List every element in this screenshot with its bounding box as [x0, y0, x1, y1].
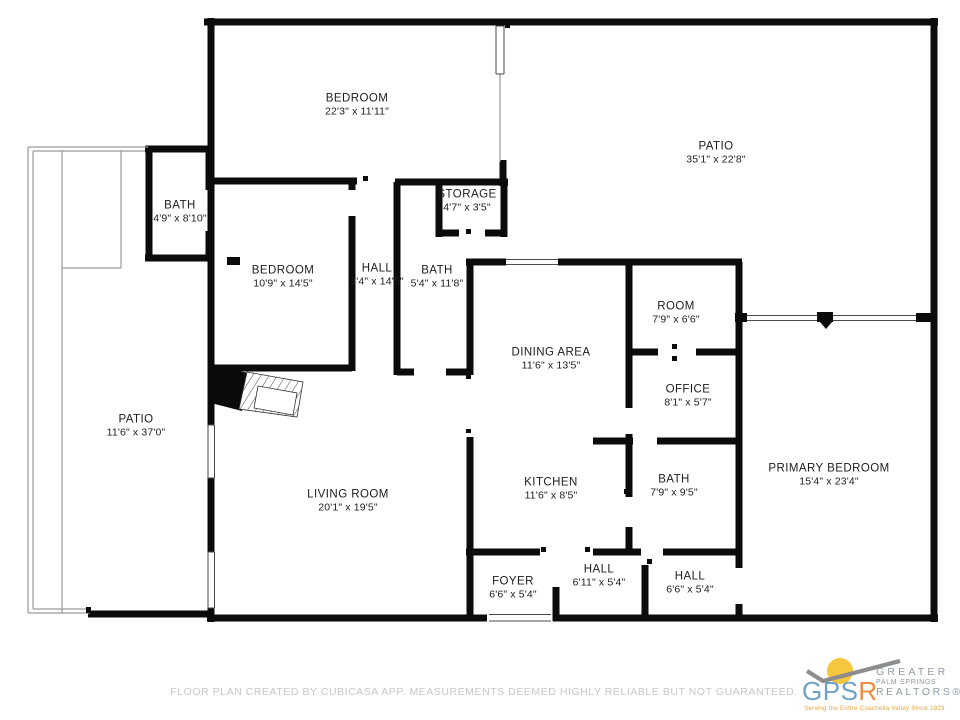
room-dims: 7'9" x 6'6": [652, 314, 700, 326]
fireplace-icon: [211, 366, 303, 417]
room-label-primary-bedroom: PRIMARY BEDROOM 15'4" x 23'4": [768, 463, 889, 488]
room-dims: 5'4" x 11'8": [411, 278, 464, 290]
room-dims: 6'11" x 5'4": [573, 577, 626, 589]
room-label-patio-left: PATIO 11'6" x 37'0": [107, 414, 166, 439]
room-dims: 11'6" x 13'5": [511, 360, 590, 372]
room-label-bath-topleft: BATH 4'9" x 8'10": [153, 200, 207, 225]
room-dims: 20'1" x 19'5": [307, 502, 389, 514]
windows-layer: [208, 26, 920, 621]
room-dims: 11'6" x 37'0": [107, 427, 166, 439]
room-label-office: OFFICE 8'1" x 5'7": [664, 384, 712, 409]
room-dims: 4'9" x 8'10": [153, 213, 207, 225]
room-dims: 11'6" x 8'5": [524, 490, 578, 502]
room-dims: 22'3" x 11'11": [325, 106, 389, 118]
gpsr-acronym-r: R: [858, 676, 877, 706]
room-label-patio-top: PATIO 35'1" x 22'8": [686, 141, 746, 166]
logo-tagline: Serving the Entire Coachella Valley Sinc…: [804, 705, 945, 712]
room-label-bedroom-mid: BEDROOM 10'9" x 14'5": [252, 265, 315, 290]
room-dims: 8'1" x 5'7": [664, 397, 712, 409]
room-name: ROOM: [652, 301, 700, 313]
room-label-bath-lower: BATH 7'9" x 9'5": [650, 474, 698, 499]
room-name: HALL: [573, 564, 626, 576]
room-label-hall-center: HALL 6'11" x 5'4": [573, 564, 626, 589]
gpsr-acronym-gps: GPS: [802, 676, 858, 706]
room-dims: 4'7" x 3'5": [437, 202, 496, 214]
room-name: HALL: [666, 571, 714, 583]
floor-plan-drawing: [0, 0, 960, 720]
room-name: PATIO: [107, 414, 166, 426]
floor-plan-page: BEDROOM 22'3" x 11'11" PATIO 35'1" x 22'…: [0, 0, 960, 720]
room-dims: 6'6" x 5'4": [666, 584, 714, 596]
room-dims: 6'6" x 5'4": [489, 589, 537, 601]
logo-line-palm-springs: PALM SPRINGS: [876, 679, 936, 686]
room-label-foyer: FOYER 6'6" x 5'4": [489, 576, 537, 601]
room-name: BATH: [411, 265, 464, 277]
room-name: KITCHEN: [524, 477, 578, 489]
room-dims: 15'4" x 23'4": [768, 476, 889, 488]
room-dims: 35'1" x 22'8": [686, 154, 746, 166]
room-label-storage: STORAGE 4'7" x 3'5": [437, 189, 496, 214]
room-label-bath-mid: BATH 5'4" x 11'8": [411, 265, 464, 290]
room-label-hall-mid: HALL 3'4" x 14'5": [350, 263, 404, 288]
room-label-hall-right: HALL 6'6" x 5'4": [666, 571, 714, 596]
room-name: BATH: [153, 200, 207, 212]
gpsr-logo-graphic: GPSR GREATER PALM SPRINGS REALTORS® Serv…: [800, 655, 960, 719]
gpsr-logo: GPSR GREATER PALM SPRINGS REALTORS® Serv…: [800, 655, 960, 719]
logo-line-greater: GREATER: [876, 666, 948, 678]
disclaimer-text: FLOOR PLAN CREATED BY CUBICASA APP. MEAS…: [170, 686, 798, 698]
room-name: HALL: [350, 263, 404, 275]
room-name: FOYER: [489, 576, 537, 588]
room-name: BATH: [650, 474, 698, 486]
room-dims: 3'4" x 14'5": [350, 276, 404, 288]
room-name: PATIO: [686, 141, 746, 153]
room-name: DINING AREA: [511, 347, 590, 359]
room-label-dining-area: DINING AREA 11'6" x 13'5": [511, 347, 590, 372]
room-label-living-room: LIVING ROOM 20'1" x 19'5": [307, 489, 389, 514]
room-dims: 7'9" x 9'5": [650, 487, 698, 499]
room-name: LIVING ROOM: [307, 489, 389, 501]
patio-lines-layer: [28, 74, 500, 613]
gpsr-acronym: GPSR: [802, 676, 878, 706]
room-label-kitchen: KITCHEN 11'6" x 8'5": [524, 477, 578, 502]
room-name: BEDROOM: [252, 265, 315, 277]
room-label-room: ROOM 7'9" x 6'6": [652, 301, 700, 326]
room-name: OFFICE: [664, 384, 712, 396]
room-name: STORAGE: [437, 189, 496, 201]
room-dims: 10'9" x 14'5": [252, 278, 315, 290]
logo-line-realtors: REALTORS®: [876, 686, 960, 698]
room-name: BEDROOM: [325, 93, 389, 105]
room-label-bedroom-top: BEDROOM 22'3" x 11'11": [325, 93, 389, 118]
room-name: PRIMARY BEDROOM: [768, 463, 889, 475]
